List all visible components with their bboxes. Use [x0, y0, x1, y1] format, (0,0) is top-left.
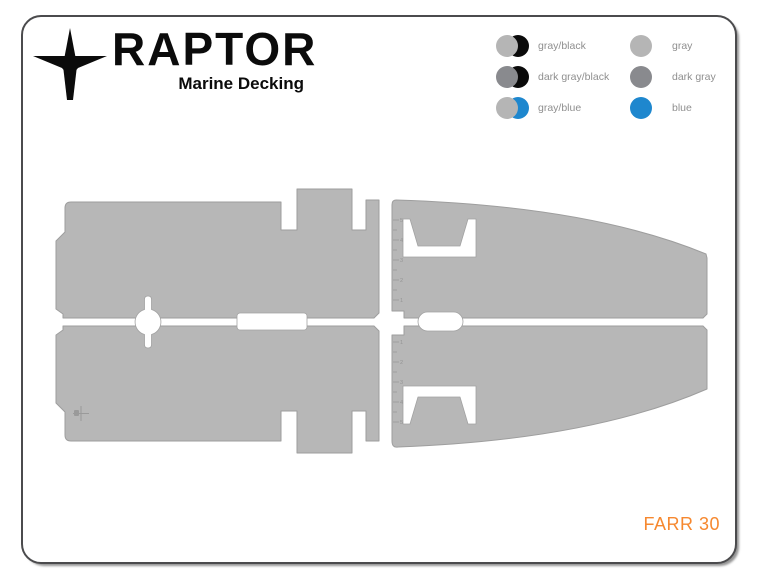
color-legend: gray/black gray dark gray/black dark gra…: [496, 30, 724, 123]
swatch-gray-blue-icon: [496, 96, 530, 120]
raptor-bird-icon: [30, 24, 110, 102]
swatch-dark-gray-icon: [630, 65, 664, 89]
swatch-gray-icon: [630, 34, 664, 58]
legend-item-label: dark gray: [672, 71, 716, 83]
swatch-dark-gray-black-icon: [496, 65, 530, 89]
legend-item-gray-blue[interactable]: gray/blue: [496, 96, 630, 120]
legend-item-label: gray/black: [538, 40, 586, 52]
legend-item-gray-black[interactable]: gray/black: [496, 34, 630, 58]
brand-wordmark: RAPTOR: [112, 22, 308, 76]
legend-item-label: dark gray/black: [538, 71, 609, 83]
brand-tagline: Marine Decking: [112, 74, 304, 94]
swatch-blue-icon: [630, 96, 664, 120]
swatch-gray-black-icon: [496, 34, 530, 58]
raptor-logo: RAPTOR Marine Decking: [30, 20, 315, 105]
legend-item-dark-gray[interactable]: dark gray: [630, 65, 724, 89]
legend-item-label: blue: [672, 102, 692, 114]
legend-item-gray[interactable]: gray: [630, 34, 724, 58]
legend-item-blue[interactable]: blue: [630, 96, 724, 120]
legend-item-label: gray/blue: [538, 102, 581, 114]
legend-item-label: gray: [672, 40, 692, 52]
model-label: FARR 30: [643, 514, 720, 535]
legend-item-dark-gray-black[interactable]: dark gray/black: [496, 65, 630, 89]
